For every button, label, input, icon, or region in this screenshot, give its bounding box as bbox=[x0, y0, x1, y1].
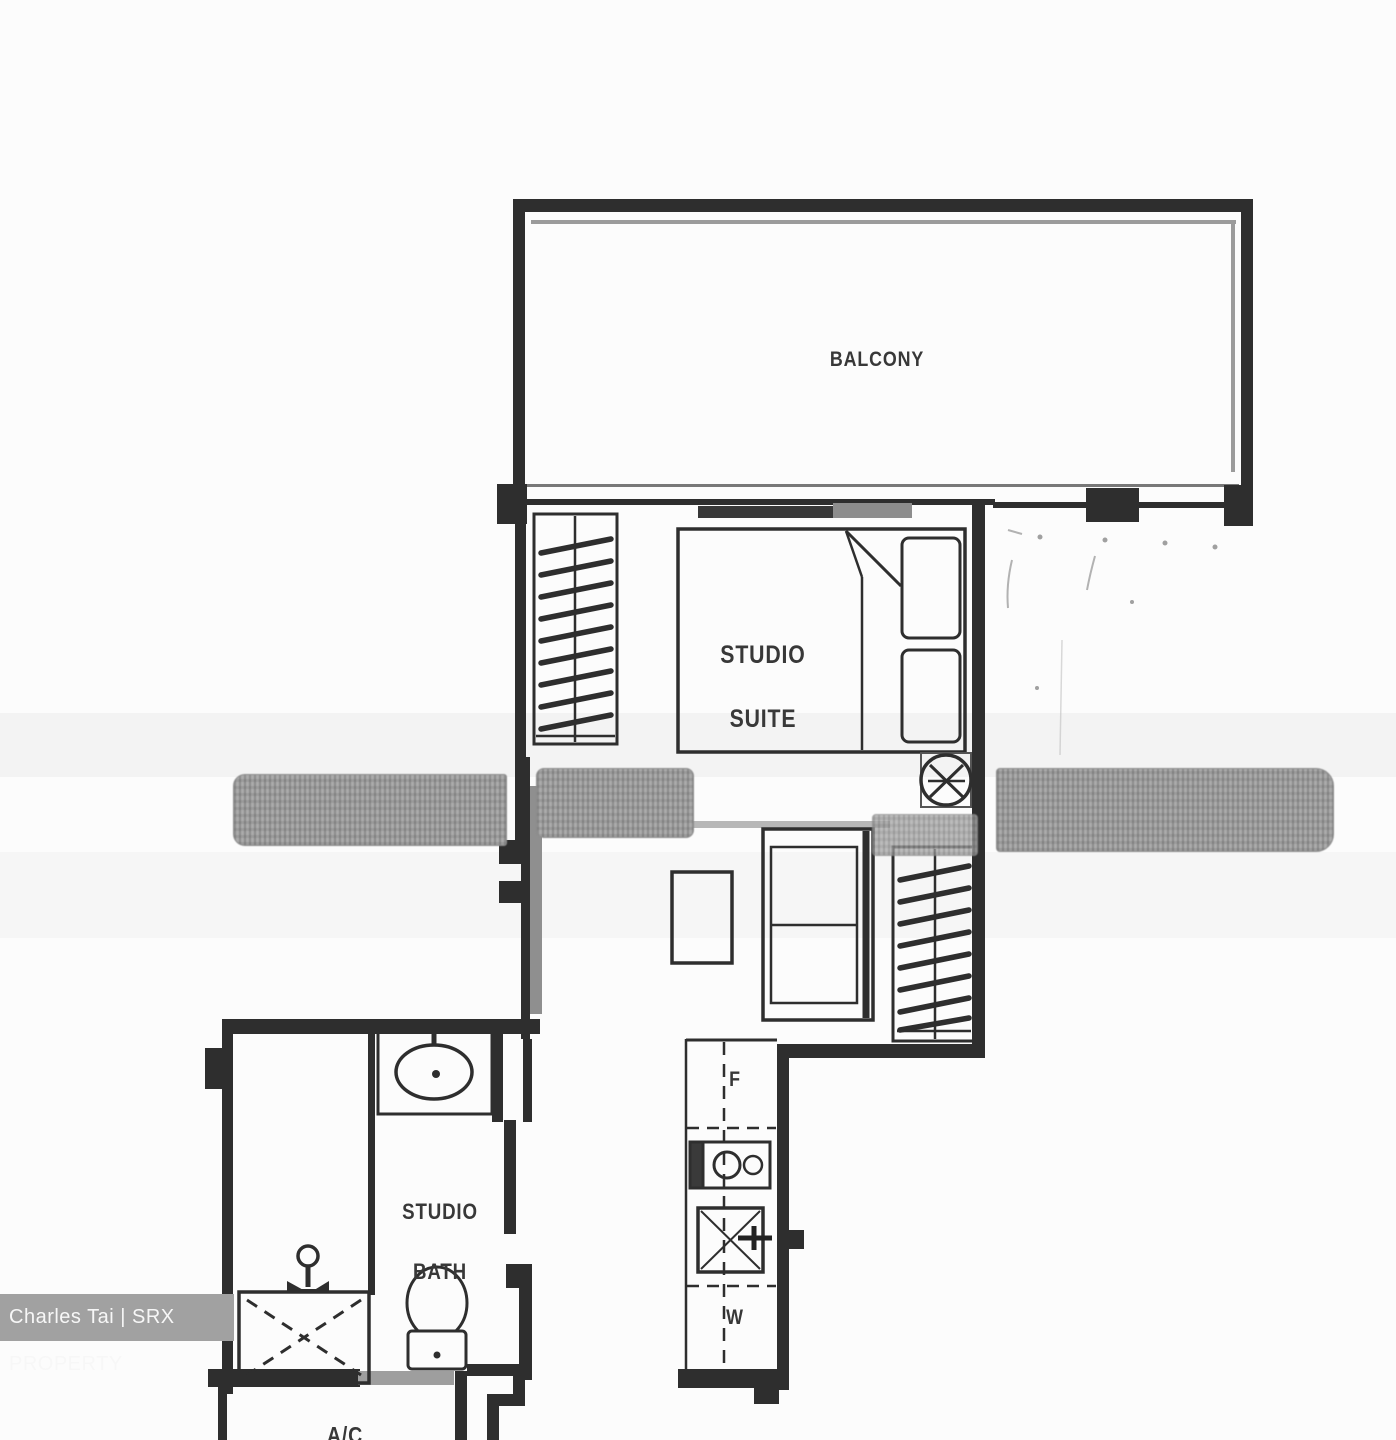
washer-label: W bbox=[721, 1306, 750, 1330]
sofa-icon bbox=[763, 829, 873, 1020]
corridor-wall bbox=[523, 1039, 532, 1122]
studio-suite-label: STUDIO SUITE bbox=[709, 607, 816, 735]
stove-icon bbox=[690, 1142, 770, 1188]
shower-head-icon bbox=[287, 1246, 329, 1292]
ac-ledge-label: A/C bbox=[311, 1422, 379, 1440]
smudge-redaction-band bbox=[233, 774, 507, 846]
unit-top-wall-line bbox=[515, 499, 995, 505]
pillow-icon bbox=[902, 650, 960, 742]
fixtures-layer bbox=[0, 0, 1396, 1440]
watermark: Charles Tai | SRX PROPERTY bbox=[0, 1294, 234, 1341]
wardrobe-icon bbox=[534, 514, 617, 744]
bath-right-wall bbox=[492, 1033, 503, 1122]
floor-plan: BALCONY STUDIO SUITE STUDIO BATH F W A/C… bbox=[0, 0, 1396, 1440]
vanity-basin-icon bbox=[378, 1030, 492, 1114]
kitchen-right-wall bbox=[777, 1052, 789, 1390]
bath-partition-wall bbox=[368, 1033, 375, 1295]
kitchen-wall-pier bbox=[789, 1230, 804, 1249]
bath-top-wall bbox=[222, 1019, 540, 1034]
pillow-icon bbox=[902, 538, 960, 638]
bedroom-right-wall bbox=[972, 504, 985, 1045]
balcony-label: BALCONY bbox=[822, 348, 933, 372]
fridge-label: F bbox=[722, 1068, 748, 1092]
balcony-left-wall bbox=[513, 199, 525, 491]
ac-ledge-right-wall bbox=[455, 1371, 467, 1440]
smudge-redaction-band bbox=[872, 814, 978, 856]
kitchen-bottom-notch bbox=[754, 1388, 779, 1404]
balcony-top-wall bbox=[513, 199, 1253, 212]
bath-right-wall bbox=[504, 1120, 516, 1234]
bath-bottom-wall bbox=[208, 1369, 360, 1387]
kitchen-bottom-wall bbox=[678, 1369, 788, 1388]
balcony-bottom-line bbox=[527, 484, 1239, 487]
entry-inner-wall bbox=[521, 757, 530, 1039]
smudge-redaction-band bbox=[996, 768, 1334, 852]
living-bottom-wall bbox=[777, 1044, 985, 1058]
balcony-right-wall bbox=[1241, 199, 1253, 491]
blanket-fold-icon bbox=[846, 531, 901, 750]
studio-suite-label-line2: SUITE bbox=[730, 705, 797, 733]
bath-right-wall bbox=[519, 1264, 532, 1380]
bath-threshold-grey bbox=[358, 1371, 454, 1385]
kitchen-sink-icon bbox=[698, 1208, 772, 1272]
scan-tint-band bbox=[0, 852, 1396, 938]
studio-bath-label-line2: BATH bbox=[413, 1259, 467, 1284]
coffee-table-icon bbox=[672, 872, 732, 963]
top-wall-pillar bbox=[1086, 488, 1139, 522]
studio-bath-label-line1: STUDIO bbox=[402, 1199, 478, 1224]
step-wall bbox=[487, 1401, 499, 1440]
bath-left-pier bbox=[205, 1048, 222, 1089]
smudge-redaction-band bbox=[536, 768, 694, 838]
sliding-door-track-grey bbox=[833, 503, 912, 518]
balcony-top-inner-line bbox=[531, 220, 1236, 224]
studio-suite-label-line1: STUDIO bbox=[720, 641, 805, 669]
faint-scribbles bbox=[1008, 530, 1218, 755]
studio-bath-label: STUDIO BATH bbox=[389, 1167, 491, 1287]
side-table-icon bbox=[921, 753, 971, 807]
wardrobe-icon bbox=[893, 847, 976, 1041]
ac-ledge-left-wall bbox=[218, 1384, 227, 1440]
balcony-right-inner-line bbox=[1231, 222, 1235, 472]
